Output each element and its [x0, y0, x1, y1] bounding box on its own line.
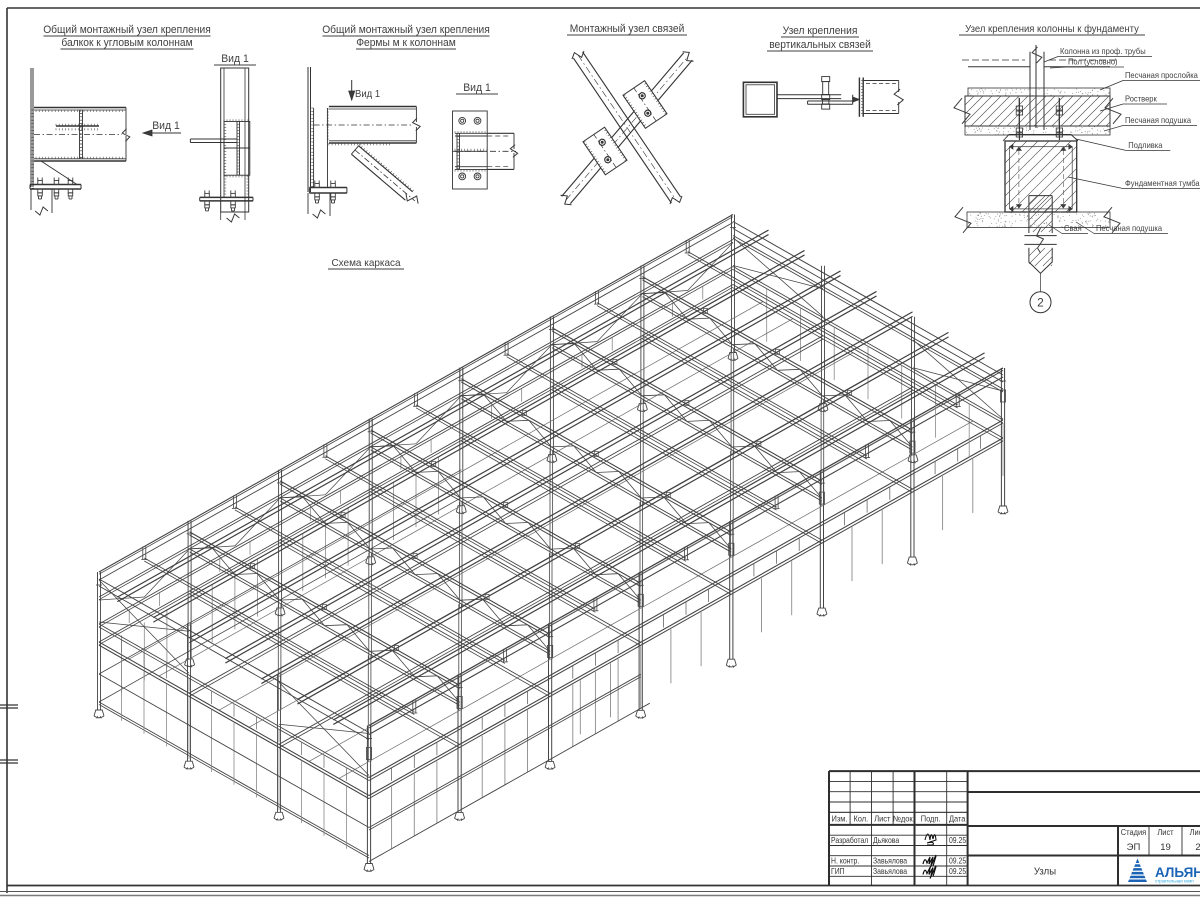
svg-text:2: 2 — [1195, 842, 1200, 853]
svg-text:Лис: Лис — [1190, 828, 1200, 837]
svg-text:Ростверк: Ростверк — [1125, 94, 1157, 103]
svg-text:Фундаментная тумба: Фундаментная тумба — [1125, 179, 1200, 188]
svg-text:19: 19 — [1160, 842, 1171, 853]
svg-text:2: 2 — [1037, 296, 1044, 310]
svg-text:Завьялова: Завьялова — [873, 856, 908, 866]
svg-text:Вид 1: Вид 1 — [152, 120, 180, 132]
svg-text:Песчаная прослойка: Песчаная прослойка — [1125, 71, 1198, 80]
svg-text:Н. контр.: Н. контр. — [831, 856, 859, 866]
svg-text:Завьялова: Завьялова — [873, 867, 908, 877]
svg-text:Монтажный узел связей: Монтажный узел связей — [570, 23, 685, 35]
svg-text:Схема каркаса: Схема каркаса — [331, 258, 400, 269]
svg-text:Вид 1: Вид 1 — [221, 53, 249, 65]
svg-text:09.25: 09.25 — [949, 856, 966, 866]
svg-text:Узел крепления: Узел крепления — [783, 25, 858, 37]
svg-text:Пол (условно): Пол (условно) — [1068, 57, 1118, 66]
svg-text:Общий монтажный узел крепления: Общий монтажный узел крепления — [322, 24, 490, 36]
svg-text:Дата: Дата — [949, 814, 966, 823]
svg-text:09.25: 09.25 — [949, 867, 966, 877]
svg-text:ЭП: ЭП — [1127, 842, 1141, 853]
svg-text:№док.: №док. — [893, 814, 915, 823]
svg-text:Подп.: Подп. — [921, 814, 941, 823]
svg-text:Разработал: Разработал — [831, 836, 868, 846]
svg-text:Фермы м к колоннам: Фермы м к колоннам — [356, 37, 456, 49]
svg-text:Кол.: Кол. — [853, 814, 868, 823]
svg-text:Дьякова: Дьякова — [873, 836, 900, 846]
svg-text:Свая: Свая — [1064, 224, 1082, 233]
svg-text:балкок к угловым колоннам: балкок к угловым колоннам — [61, 37, 192, 49]
svg-text:ГИП: ГИП — [831, 867, 845, 877]
svg-text:вертикальных связей: вертикальных связей — [769, 39, 871, 51]
svg-text:Песчаная подушка: Песчаная подушка — [1125, 116, 1192, 125]
svg-text:Подливка: Подливка — [1128, 141, 1163, 150]
svg-text:Общий монтажный узел крепления: Общий монтажный узел крепления — [43, 24, 211, 36]
svg-text:Колонна из проф. трубы: Колонна из проф. трубы — [1060, 47, 1146, 56]
svg-text:строительная комп: строительная комп — [1155, 878, 1194, 883]
svg-text:Узлы: Узлы — [1034, 866, 1056, 877]
svg-text:09.25: 09.25 — [949, 836, 966, 846]
svg-text:Изм.: Изм. — [832, 814, 848, 823]
svg-text:Лист: Лист — [874, 814, 891, 823]
svg-text:Вид 1: Вид 1 — [355, 89, 380, 100]
svg-text:Лист: Лист — [1157, 828, 1174, 837]
svg-text:Вид 1: Вид 1 — [463, 82, 491, 94]
svg-text:Стадия: Стадия — [1121, 828, 1146, 837]
svg-text:Узел крепления колонны к фунда: Узел крепления колонны к фундаменту — [965, 24, 1139, 35]
